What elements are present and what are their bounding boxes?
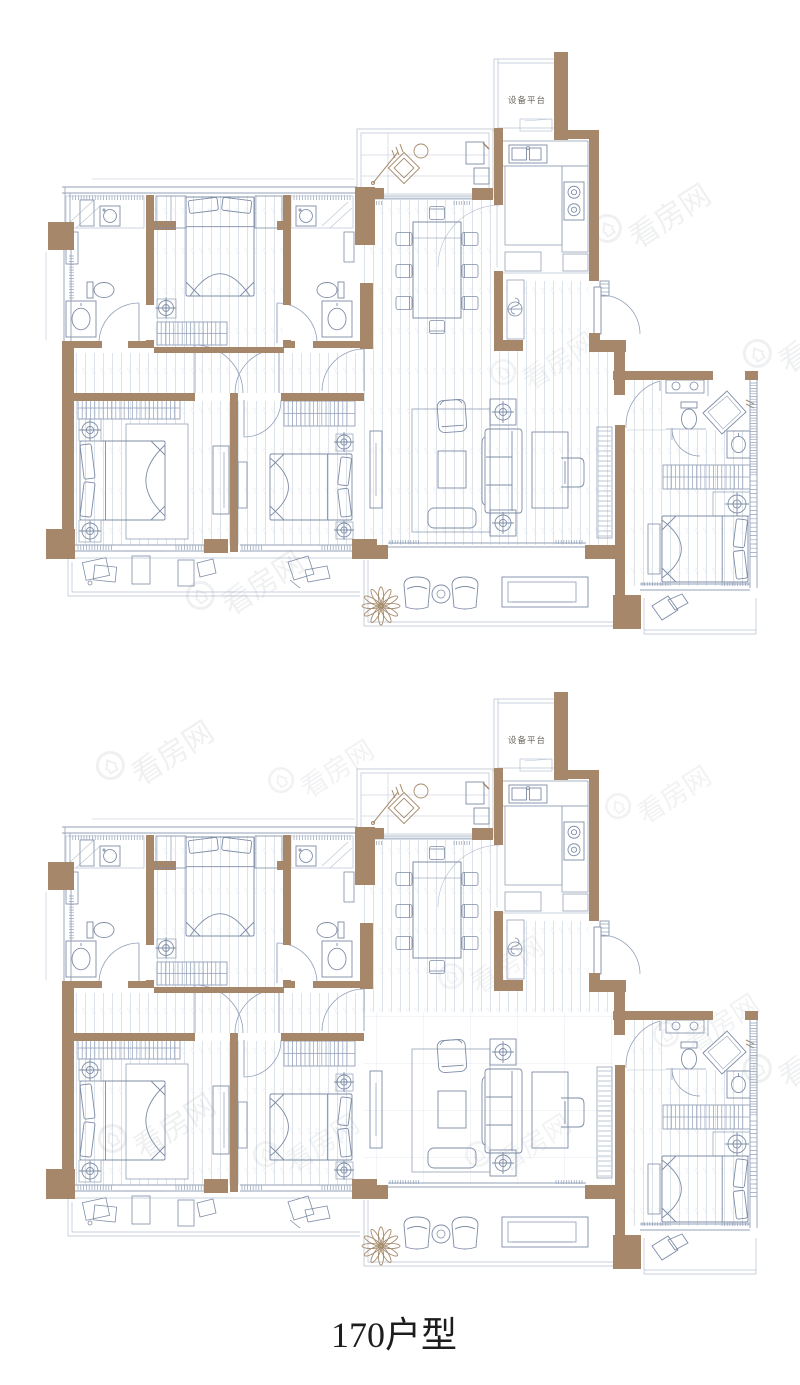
svg-text:170户型: 170户型 — [331, 1315, 457, 1355]
svg-text:看房网: 看房网 — [632, 761, 716, 830]
svg-text:看房网: 看房网 — [126, 716, 219, 793]
svg-text:看房网: 看房网 — [773, 1019, 800, 1096]
svg-text:设备平台: 设备平台 — [508, 95, 546, 105]
svg-text:设备平台: 设备平台 — [508, 735, 546, 745]
svg-text:看房网: 看房网 — [623, 179, 716, 256]
svg-text:看房网: 看房网 — [773, 304, 800, 381]
svg-text:看房网: 看房网 — [216, 546, 309, 623]
